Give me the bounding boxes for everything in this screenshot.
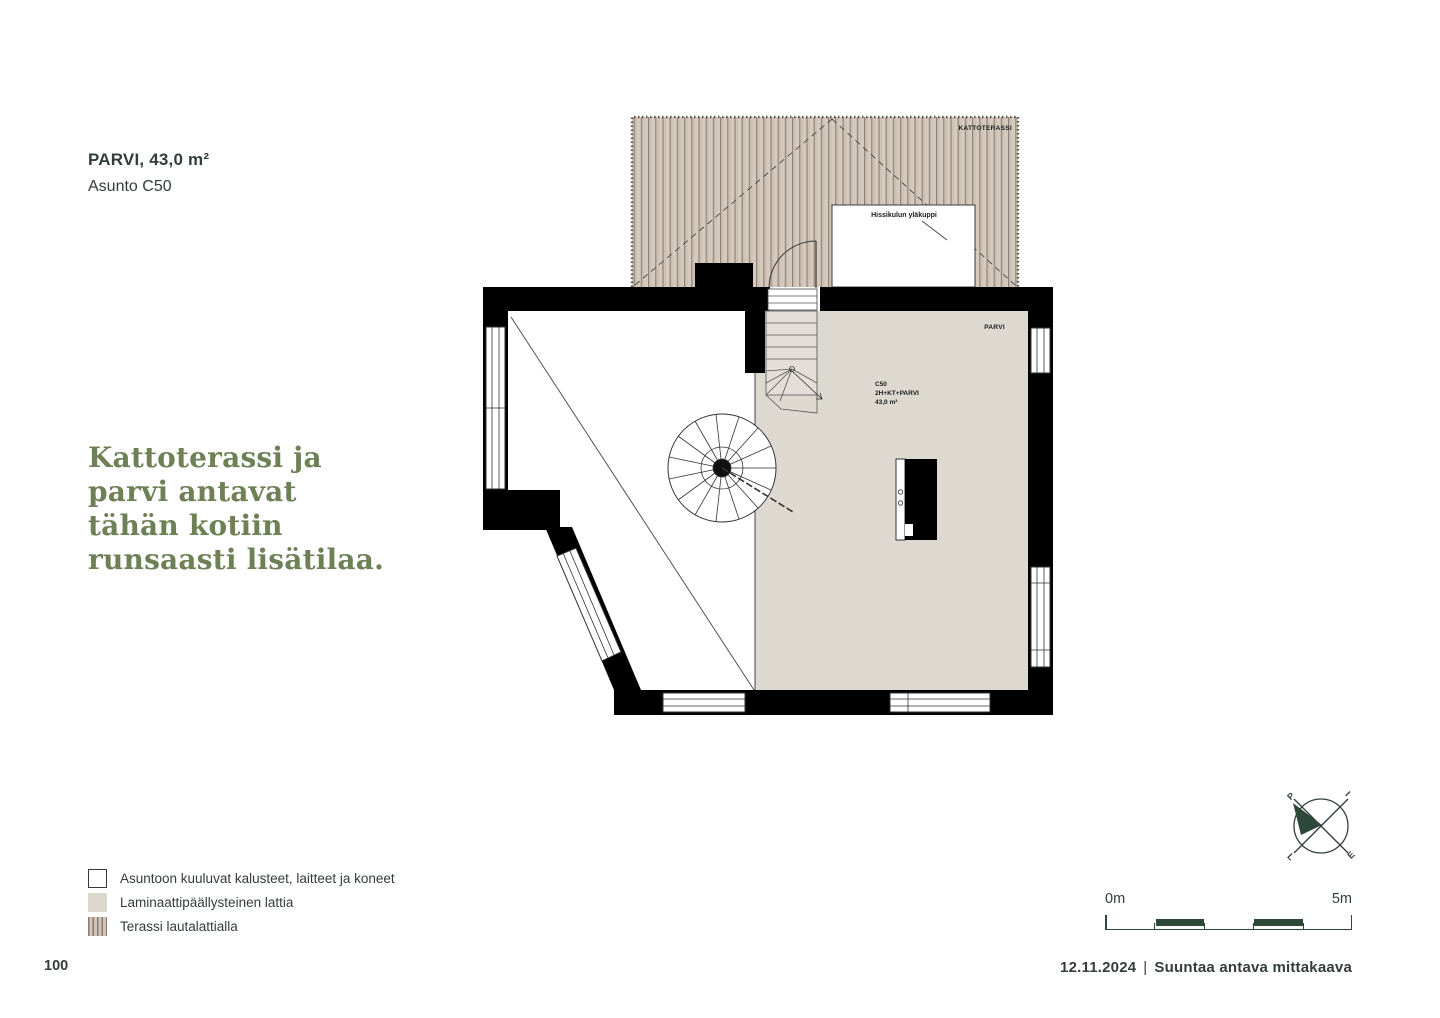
window-bottom-left bbox=[663, 693, 745, 712]
scale-end-label: 5m bbox=[1332, 891, 1352, 907]
legend-label: Terassi lautalattialla bbox=[120, 919, 238, 934]
footer-date: 12.11.2024 bbox=[1060, 959, 1136, 976]
laminate-swatch-icon bbox=[88, 893, 107, 912]
scale-track bbox=[1105, 911, 1352, 930]
window-right-bottom bbox=[1031, 567, 1050, 667]
wall-stairwell bbox=[745, 311, 765, 373]
window-bottom-right bbox=[890, 693, 990, 712]
legend-item-furniture: Asuntoon kuuluvat kalusteet, laitteet ja… bbox=[88, 866, 395, 890]
legend-item-laminate: Laminaattipäällysteinen lattia bbox=[88, 890, 395, 914]
headline-line: Kattoterassi ja bbox=[88, 441, 448, 475]
page-number: 100 bbox=[44, 958, 68, 974]
staircase bbox=[766, 289, 822, 413]
scale-tick bbox=[1105, 915, 1107, 930]
compass-icon: P I E L bbox=[1282, 788, 1360, 866]
scale-tick bbox=[1303, 923, 1304, 930]
headline-line: runsaasti lisätilaa. bbox=[88, 543, 448, 577]
window-right-top bbox=[1031, 328, 1050, 373]
marketing-headline: Kattoterassi ja parvi antavat tähän koti… bbox=[88, 441, 448, 577]
footer-note: 12.11.2024|Suuntaa antava mittakaava bbox=[1060, 959, 1352, 976]
loft-label: PARVI bbox=[984, 324, 1005, 331]
wall-top-right bbox=[820, 287, 1053, 311]
apartment-subtitle: Asunto C50 bbox=[88, 178, 209, 196]
compass-letter-east: I bbox=[1343, 789, 1352, 798]
compass-letter-west: L bbox=[1285, 851, 1296, 862]
furniture-swatch-icon bbox=[88, 869, 107, 888]
scale-start-label: 0m bbox=[1105, 891, 1125, 907]
scale-tick bbox=[1351, 915, 1353, 930]
roof-terrace: Hissikulun yläkuppi KATTOTERASSI bbox=[632, 117, 1018, 289]
headline-line: tähän kotiin bbox=[88, 509, 448, 543]
compass-rose: P I E L bbox=[1282, 788, 1360, 871]
wall-left-corner bbox=[508, 490, 560, 530]
headline-line: parvi antavat bbox=[88, 475, 448, 509]
scale-tick bbox=[1204, 923, 1205, 930]
terrace-swatch-icon bbox=[88, 917, 107, 936]
terrace-wall-stub bbox=[695, 263, 753, 289]
apartment-area-label: 43,0 m² bbox=[875, 399, 898, 406]
apartment-type-label: 2H+KT+PARVI bbox=[875, 390, 919, 397]
scale-bar: 0m 5m bbox=[1105, 891, 1352, 933]
window-diagonal bbox=[557, 548, 621, 661]
floor-plan: Hissikulun yläkuppi KATTOTERASSI bbox=[460, 95, 1080, 745]
roof-terrace-label: KATTOTERASSI bbox=[958, 125, 1012, 132]
elevator-top-label: Hissikulun yläkuppi bbox=[871, 212, 937, 219]
legend-label: Laminaattipäällysteinen lattia bbox=[120, 895, 293, 910]
page-title: PARVI, 43,0 m² bbox=[88, 150, 209, 170]
scale-segment bbox=[1254, 919, 1302, 926]
brochure-page: PARVI, 43,0 m² Asunto C50 Kattoterassi j… bbox=[0, 0, 1440, 1018]
elevator-shaft-top: Hissikulun yläkuppi bbox=[832, 205, 975, 287]
wall-top-left bbox=[483, 287, 770, 311]
scale-baseline bbox=[1105, 929, 1352, 931]
scale-segment bbox=[1156, 919, 1204, 926]
floor-plan-svg: Hissikulun yläkuppi KATTOTERASSI bbox=[460, 95, 1080, 745]
plan-legend: Asuntoon kuuluvat kalusteet, laitteet ja… bbox=[88, 866, 395, 938]
apartment-id-label: C50 bbox=[875, 381, 887, 388]
footer-separator: | bbox=[1136, 959, 1154, 976]
apartment-header: PARVI, 43,0 m² Asunto C50 bbox=[88, 150, 209, 196]
kitchen-island bbox=[896, 459, 937, 540]
compass-letter-south: E bbox=[1345, 849, 1356, 860]
legend-label: Asuntoon kuuluvat kalusteet, laitteet ja… bbox=[120, 871, 395, 886]
door-threshold bbox=[768, 289, 817, 310]
scale-labels: 0m 5m bbox=[1105, 891, 1352, 907]
footer-disclaimer: Suuntaa antava mittakaava bbox=[1154, 959, 1352, 976]
legend-item-terrace: Terassi lautalattialla bbox=[88, 914, 395, 938]
